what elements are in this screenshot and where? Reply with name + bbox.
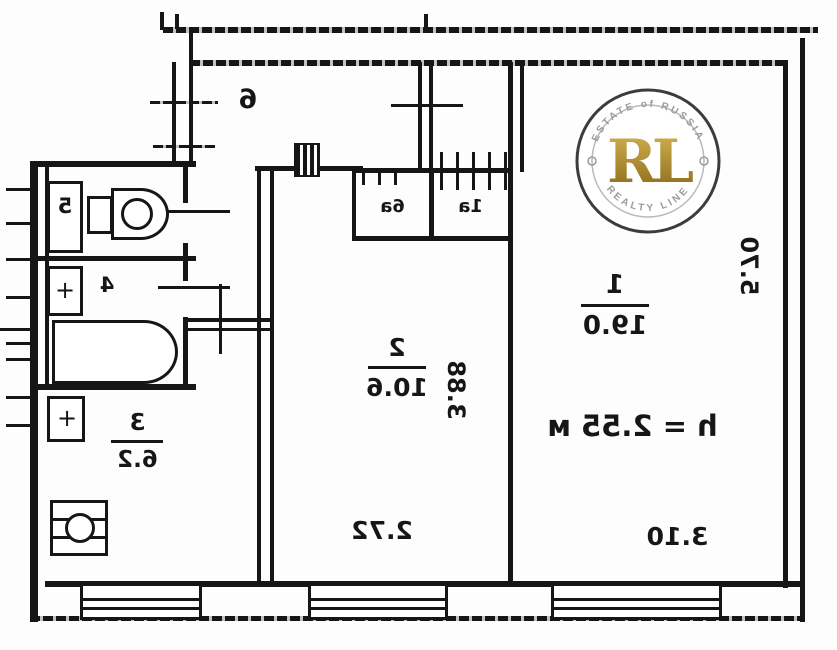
window-mullion bbox=[553, 607, 720, 610]
wall bbox=[257, 166, 261, 583]
room-1-area-label: 19.0 bbox=[570, 311, 660, 341]
wall-tick bbox=[378, 173, 381, 185]
kitchen-door-line bbox=[219, 284, 222, 354]
dim-room2-width-label: 2.72 bbox=[337, 518, 427, 543]
wall-tick bbox=[160, 12, 164, 30]
fraction-bar bbox=[581, 304, 649, 307]
floor-plan-scan: 5 + 4 + 3 6.2 6а 1а 6 bbox=[0, 0, 837, 650]
wall-tick bbox=[394, 173, 397, 185]
wall-tick bbox=[472, 152, 475, 190]
wall bbox=[429, 168, 434, 240]
window-mullion bbox=[310, 598, 446, 601]
wall-tick bbox=[150, 101, 218, 104]
wall bbox=[30, 256, 196, 261]
wall bbox=[352, 168, 356, 240]
wall-tick bbox=[6, 358, 30, 361]
wall-right-outer bbox=[800, 38, 805, 622]
room-2-area-label: 10.6 bbox=[352, 373, 442, 402]
wall-tick bbox=[6, 296, 30, 299]
wall bbox=[30, 161, 196, 167]
window-mullion bbox=[310, 607, 446, 610]
wall-tick bbox=[6, 222, 30, 225]
kitchen-area-label: 6.2 bbox=[95, 447, 180, 473]
wall-tick bbox=[424, 14, 428, 29]
closet-6a-label: 6а bbox=[370, 198, 415, 216]
wall bbox=[270, 166, 274, 583]
vent-plus-mark: + bbox=[50, 278, 80, 302]
window-mullion bbox=[553, 598, 720, 601]
wall-tick bbox=[175, 14, 179, 29]
hallway-number-label: 6 bbox=[228, 86, 268, 113]
wall bbox=[183, 167, 188, 203]
wall bbox=[429, 62, 433, 170]
room-1-number-label: 1 bbox=[570, 270, 660, 300]
window-room1 bbox=[551, 583, 722, 620]
toilet-number-label: 5 bbox=[50, 196, 80, 217]
wall-tick bbox=[153, 145, 215, 148]
window-room2 bbox=[308, 583, 448, 620]
wall-tick bbox=[0, 328, 30, 331]
wall bbox=[520, 62, 524, 172]
sink-drain-icon bbox=[65, 513, 95, 543]
toilet-bowl-icon bbox=[121, 198, 153, 230]
kitchen-number-label: 3 bbox=[95, 410, 180, 436]
entry-door-line bbox=[391, 104, 463, 107]
wall-tick bbox=[6, 258, 30, 261]
wall-tick bbox=[504, 152, 507, 190]
wall-tick bbox=[488, 152, 491, 190]
wall-left-outer bbox=[30, 162, 38, 622]
logo-monogram: RL bbox=[607, 127, 693, 197]
wall-top-inner bbox=[190, 60, 788, 66]
wall bbox=[508, 62, 513, 583]
wall-tick bbox=[362, 173, 365, 185]
fraction-bar bbox=[368, 366, 426, 369]
wall-tick bbox=[6, 342, 30, 345]
toilet-tank-icon bbox=[87, 196, 113, 234]
dim-room2-depth-label: 3.88 bbox=[442, 345, 468, 435]
wall-top-outer bbox=[163, 27, 818, 33]
dim-room1-width-label: 3.10 bbox=[630, 524, 725, 549]
kitchen-label: 3 6.2 bbox=[95, 410, 180, 473]
fraction-bar bbox=[112, 440, 164, 443]
wall-tick bbox=[6, 424, 30, 427]
vent-stack bbox=[294, 143, 320, 177]
bathtub-icon bbox=[52, 320, 178, 384]
wall-tick bbox=[6, 396, 30, 399]
window-mullion bbox=[82, 607, 200, 610]
window-mullion bbox=[82, 598, 200, 601]
wall bbox=[418, 62, 422, 170]
dim-room1-depth-label: 5.70 bbox=[735, 221, 761, 311]
wall bbox=[183, 259, 188, 281]
closet-1a-label: 1а bbox=[448, 198, 493, 216]
room-1-label: 1 19.0 bbox=[570, 270, 660, 341]
wall bbox=[30, 384, 196, 390]
ceiling-height-label: h = 2.55 м bbox=[520, 412, 745, 441]
bathroom-number-label: 4 bbox=[92, 275, 122, 296]
wall-tick bbox=[456, 152, 459, 190]
room-2-number-label: 2 bbox=[352, 333, 442, 362]
vent-plus-mark: + bbox=[52, 406, 82, 430]
window-kitchen bbox=[80, 583, 202, 620]
wall-tick bbox=[440, 152, 443, 190]
room-2-label: 2 10.6 bbox=[352, 333, 442, 402]
wall-tick bbox=[6, 188, 30, 191]
wall-right-inner bbox=[783, 60, 788, 588]
wall bbox=[172, 62, 176, 166]
watermark-logo: ESTATE of RUSSIA REALTY LINE RL bbox=[572, 85, 724, 237]
